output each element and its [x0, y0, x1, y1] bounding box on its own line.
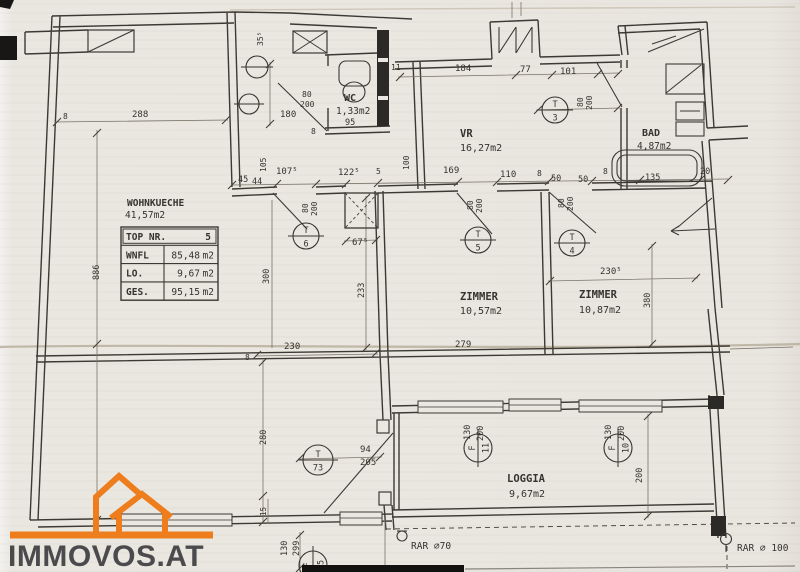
door-tag-t4: T4 — [554, 230, 590, 257]
dim-110: 110 — [500, 170, 516, 180]
scanned-floor-plan-page: TOP NR.5WNFL85,48m2LO.9,67m2GES.95,15m2 … — [0, 0, 800, 572]
dim-8-e: 8 — [245, 353, 250, 362]
door-tag-t6: T6 — [288, 223, 324, 250]
dim-107-5: 107⁵ — [276, 167, 298, 177]
dim-280: 280 — [259, 430, 269, 445]
door-jamb-top — [377, 420, 389, 433]
door-tag-t5-letter: T — [475, 230, 480, 240]
dim-t3-200: 200 — [585, 95, 594, 110]
room-label-zimmer-2: ZIMMER — [579, 289, 618, 301]
scan-artifact-bottom-bar — [302, 565, 464, 572]
info-table-text: TOP NR.5WNFL85,48m2LO.9,67m2GES.95,15m2 — [126, 232, 214, 298]
dim-233: 233 — [357, 283, 367, 298]
dim-100-v: 100 — [402, 155, 411, 170]
annotation-rar-right: RAR ∅ 100 — [737, 543, 789, 554]
dim-t4-200: 200 — [566, 196, 575, 211]
info-table-row-label: LO. — [126, 269, 143, 280]
dim-t4-80: 80 — [557, 198, 566, 208]
scan-artifact-bottom-line — [465, 566, 795, 569]
dim-50-a: 50 — [551, 174, 561, 184]
room-area-vr: 16,27m2 — [460, 143, 502, 154]
window-tag-f11-letter: F — [468, 445, 478, 450]
info-table-row-value: 95,15 — [171, 287, 200, 298]
info-table-row-value: 9,67 — [177, 269, 200, 280]
room-area-bad: 4,87m2 — [637, 141, 671, 152]
info-table-row-label: WNFL — [126, 250, 149, 261]
dim-8-b: 8 — [311, 127, 316, 136]
dimension-ticks — [53, 60, 732, 572]
dim-44: 44 — [252, 177, 262, 187]
info-table: TOP NR.5WNFL85,48m2LO.9,67m2GES.95,15m2 — [121, 227, 218, 300]
dim-8-a: 8 — [63, 112, 68, 121]
dim-205: 205 — [360, 458, 376, 468]
dim-8-c: 8 — [537, 169, 542, 178]
window-tag-f10-letter: F — [608, 445, 618, 450]
logo-text: IMMOVOS.AT — [8, 540, 204, 572]
dim-279: 279 — [455, 340, 471, 350]
scan-artifact-top-left — [0, 0, 14, 9]
dim-122-5: 122⁵ — [338, 168, 360, 178]
dim-wc-door-80: 80 — [302, 90, 312, 99]
sink-cabinet-b — [676, 122, 704, 136]
scan-crease-top — [230, 7, 795, 10]
info-table-row-unit: m2 — [203, 287, 214, 298]
door-tag-t3-number: 3 — [552, 114, 557, 124]
dim-t5-80: 80 — [466, 200, 475, 210]
door-tag-t73-number: 73 — [313, 464, 323, 474]
pillar-loggia-bottom — [711, 516, 726, 536]
dim-230-5: 230⁵ — [600, 267, 622, 277]
info-table-row-unit: m2 — [203, 250, 214, 261]
rar-symbol-left — [397, 531, 407, 541]
dim-20: 20 — [700, 167, 710, 177]
dim-380: 380 — [643, 293, 653, 308]
info-table-row-label: GES. — [126, 287, 149, 298]
info-table-row-value: 5 — [205, 232, 211, 243]
door-tag-t6-letter: T — [303, 226, 308, 236]
scan-artifact-left-edge — [0, 36, 17, 60]
dim-77: 77 — [520, 65, 531, 75]
dim-67-5: 67⁵ — [352, 238, 368, 248]
room-label-zimmer-1: ZIMMER — [460, 291, 499, 303]
dim-wc-door-200: 200 — [300, 100, 315, 109]
room-label-wc: WC — [344, 93, 356, 104]
room-area-wohnkueche: 41,57m2 — [125, 210, 165, 221]
door-tag-t5-number: 5 — [475, 244, 480, 254]
door-tag-t5: T5 — [460, 227, 496, 254]
dim-8-d: 8 — [603, 167, 608, 176]
dim-45: 45 — [238, 175, 248, 185]
pillar-loggia-top — [708, 396, 724, 409]
annotation-rar-left: RAR ∅70 — [411, 541, 451, 552]
dim-t6-80: 80 — [301, 203, 310, 213]
wall-notch-a — [378, 58, 388, 62]
room-area-zimmer-2: 10,87m2 — [579, 305, 621, 316]
room-label-vr: VR — [460, 128, 473, 140]
room-label-loggia: LOGGIA — [507, 473, 546, 485]
dim-105-v: 105 — [259, 157, 268, 172]
dim-288: 288 — [132, 110, 148, 120]
room-area-wc: 1,33m2 — [336, 106, 370, 117]
dim-184: 184 — [455, 64, 471, 74]
dim-130-a: 130 — [280, 541, 290, 556]
door-tag-t3: T3 — [537, 97, 573, 124]
dim-886: 886 — [92, 265, 102, 280]
tags-layer: T6T5T4T3T73F11F10F15 — [234, 56, 632, 572]
floor-plan-drawing: TOP NR.5WNFL85,48m2LO.9,67m2GES.95,15m2 … — [0, 0, 800, 572]
dim-35-5: 35⁵ — [256, 32, 265, 46]
room-area-loggia: 9,67m2 — [509, 489, 545, 500]
info-table-row-unit: m2 — [203, 269, 214, 280]
dim-135: 135 — [645, 173, 660, 183]
dim-169: 169 — [443, 166, 459, 176]
dim-95: 95 — [345, 118, 355, 128]
room-area-zimmer-1: 10,57m2 — [460, 306, 502, 317]
info-table-row-value: 85,48 — [171, 250, 200, 261]
duct-hatch-cross — [293, 31, 327, 53]
door-tag-t4-letter: T — [569, 233, 574, 243]
dim-130-b: 299 — [292, 541, 302, 556]
window-tag-f11-number: 11 — [482, 443, 492, 453]
shaft-cross-dashed — [345, 193, 378, 228]
window-tag-f10-number: 10 — [622, 443, 632, 453]
wall-notch-b — [378, 96, 388, 100]
dim-15: 15 — [259, 507, 268, 516]
bathroom-fixtures — [339, 61, 704, 186]
door-tag-t3-letter: T — [552, 100, 557, 110]
door-jamb-bottom — [379, 492, 391, 505]
dimension-lines — [55, 2, 793, 572]
info-table-row-label: TOP NR. — [126, 232, 166, 243]
room-label-wohnkueche: WOHNKUECHE — [127, 198, 184, 209]
dim-loggia-200: 200 — [635, 468, 645, 483]
door-tag-t4-number: 4 — [569, 247, 574, 257]
room-label-bad: BAD — [642, 128, 660, 139]
dim-50-b: 50 — [578, 175, 588, 185]
door-tag-t73: T73 — [298, 445, 338, 475]
dim-t3-80: 80 — [576, 97, 585, 107]
shower-box — [666, 64, 704, 94]
wall-fill-wc — [377, 30, 389, 126]
dim-230: 230 — [284, 342, 300, 352]
dim-101: 101 — [560, 67, 576, 77]
dim-94: 94 — [360, 445, 371, 455]
door-tag-t73-letter: T — [315, 450, 320, 460]
dim-t5-200: 200 — [475, 198, 484, 213]
dim-11: 11 — [391, 63, 401, 72]
fixture-circle-a — [241, 56, 273, 78]
dim-5: 5 — [376, 167, 381, 176]
dim-300: 300 — [262, 269, 272, 284]
dim-180: 180 — [280, 110, 296, 120]
door-tag-t6-number: 6 — [303, 240, 308, 250]
dim-t6-200: 200 — [310, 201, 319, 216]
